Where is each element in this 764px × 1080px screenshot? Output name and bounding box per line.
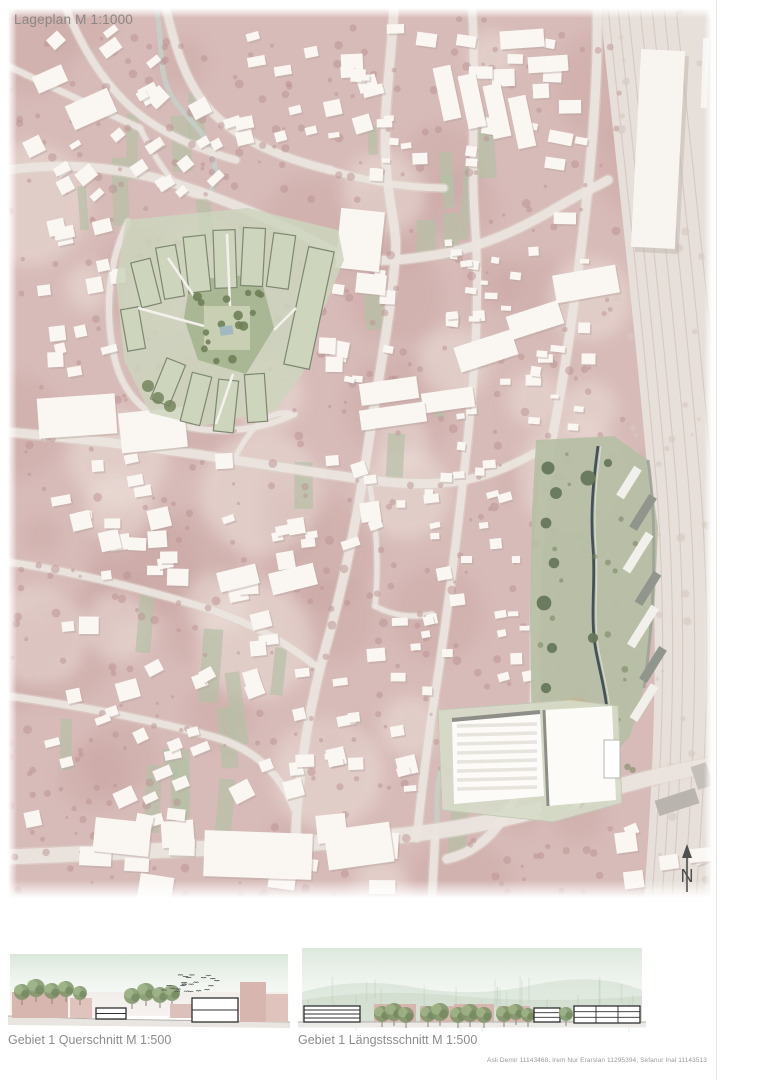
north-arrow-svg: N xyxy=(672,842,702,896)
long-section-content xyxy=(298,948,646,1032)
north-letter: N xyxy=(681,866,694,886)
cross-section-content xyxy=(8,954,290,1028)
site-plan-map xyxy=(8,8,712,898)
long-section-drawing xyxy=(298,944,646,1032)
industrial-complex xyxy=(438,700,622,822)
cross-section-figure xyxy=(8,948,290,1032)
north-arrow-icon: N xyxy=(672,842,702,896)
poster-sheet: Lageplan M 1:1000 N Gebiet 1 Querschnitt… xyxy=(0,0,764,1080)
cross-section-drawing xyxy=(8,948,290,1032)
site-plan-panel: Lageplan M 1:1000 N xyxy=(8,8,712,898)
long-section-label: Gebiet 1 Längstsschnitt M 1:500 xyxy=(298,1033,477,1047)
sheet-edge-line xyxy=(716,0,717,1080)
cross-section-label: Gebiet 1 Querschnitt M 1:500 xyxy=(8,1033,171,1047)
long-section-figure xyxy=(298,944,646,1032)
map-title: Lageplan M 1:1000 xyxy=(14,12,133,27)
credits-line: Asli Demir 11143468, Irem Nur Erarslan 1… xyxy=(487,1057,707,1064)
